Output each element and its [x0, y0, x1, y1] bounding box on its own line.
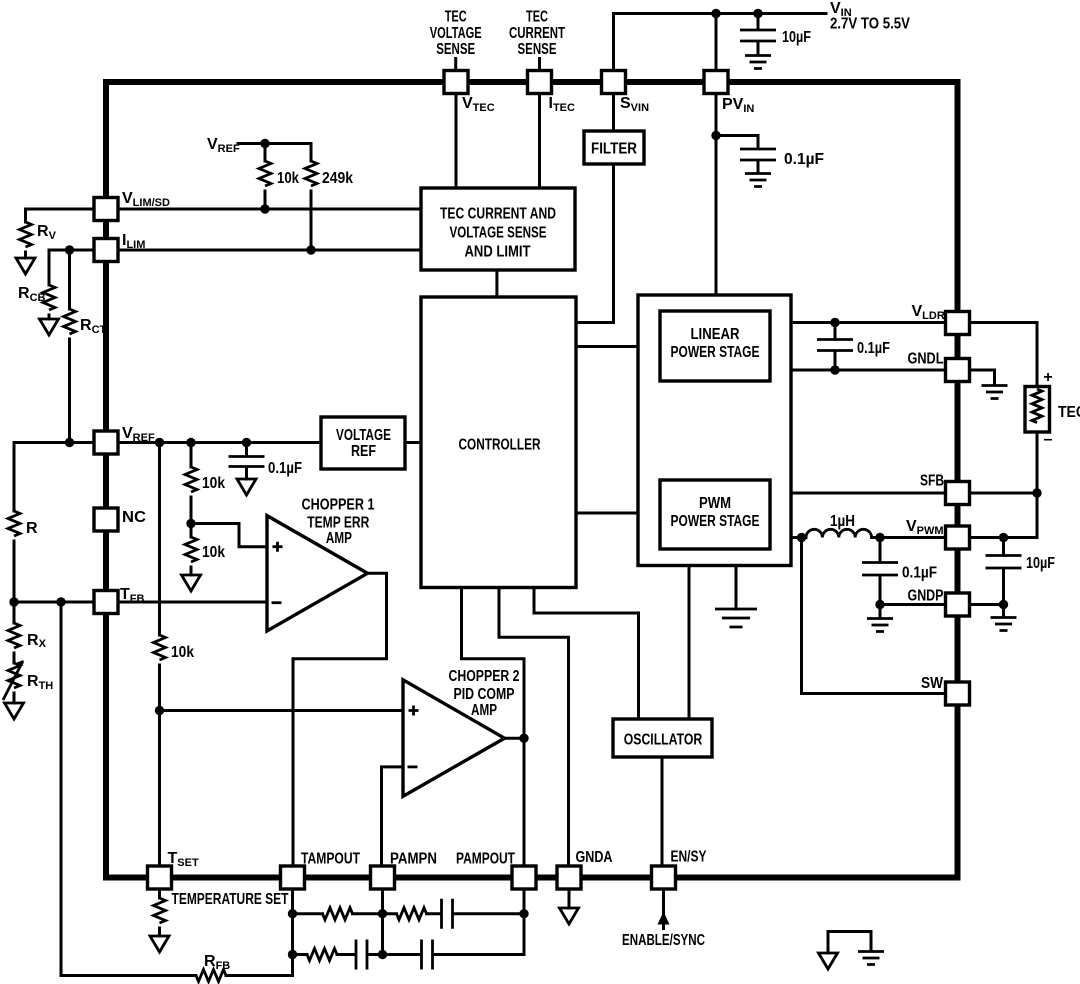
svg-text:GNDP: GNDP — [908, 588, 944, 605]
svg-text:ENABLE/SYNC: ENABLE/SYNC — [622, 932, 705, 949]
svg-text:GNDL: GNDL — [908, 351, 944, 368]
svg-text:SENSE: SENSE — [436, 41, 475, 58]
svg-text:TEC: TEC — [1058, 404, 1080, 421]
svg-text:VOLTAGE: VOLTAGE — [430, 25, 482, 42]
svg-text:SFB: SFB — [920, 473, 944, 490]
svg-text:0.1µF: 0.1µF — [857, 340, 890, 357]
svg-text:10µF: 10µF — [782, 29, 811, 46]
svg-text:PAMPN: PAMPN — [390, 851, 437, 868]
svg-text:POWER STAGE: POWER STAGE — [671, 513, 760, 530]
svg-text:GNDA: GNDA — [576, 849, 613, 866]
svg-text:LINEAR: LINEAR — [691, 326, 740, 343]
svg-text:10k: 10k — [171, 644, 194, 661]
svg-text:TEMPERATURE SET: TEMPERATURE SET — [172, 891, 289, 908]
svg-text:0.1µF: 0.1µF — [268, 460, 302, 477]
svg-text:CURRENT: CURRENT — [509, 25, 565, 42]
svg-text:TEC: TEC — [445, 9, 467, 26]
svg-text:OSCILLATOR: OSCILLATOR — [624, 732, 703, 749]
svg-text:TAMPOUT: TAMPOUT — [301, 851, 360, 868]
svg-text:R: R — [26, 520, 38, 537]
svg-text:+: + — [1043, 369, 1052, 386]
svg-text:10k: 10k — [277, 170, 299, 187]
svg-text:AMP: AMP — [326, 530, 352, 547]
svg-text:SW: SW — [921, 675, 944, 692]
svg-text:0.1µF: 0.1µF — [784, 151, 824, 168]
svg-text:NC: NC — [122, 509, 146, 526]
svg-text:10k: 10k — [202, 544, 225, 561]
svg-text:CONTROLLER: CONTROLLER — [459, 437, 541, 454]
svg-text:AMP: AMP — [471, 702, 497, 719]
svg-text:10µF: 10µF — [1026, 555, 1055, 572]
svg-text:10k: 10k — [202, 475, 225, 492]
svg-text:FILTER: FILTER — [591, 141, 637, 158]
svg-text:CHOPPER 2: CHOPPER 2 — [449, 668, 520, 685]
svg-text:2.7V TO 5.5V: 2.7V TO 5.5V — [830, 16, 910, 33]
svg-text:CHOPPER 1: CHOPPER 1 — [302, 496, 375, 513]
svg-text:PAMPOUT: PAMPOUT — [456, 851, 515, 868]
svg-text:249k: 249k — [322, 170, 353, 187]
svg-text:SENSE: SENSE — [518, 41, 557, 58]
svg-text:0.1µF: 0.1µF — [902, 565, 937, 582]
svg-text:VOLTAGE: VOLTAGE — [336, 427, 391, 444]
svg-text:POWER STAGE: POWER STAGE — [671, 344, 760, 361]
svg-text:TEC CURRENT AND: TEC CURRENT AND — [440, 206, 556, 223]
svg-text:VOLTAGE SENSE: VOLTAGE SENSE — [450, 225, 547, 242]
svg-text:–: – — [1044, 431, 1053, 448]
svg-text:EN/SY: EN/SY — [671, 849, 707, 866]
svg-text:PID COMP: PID COMP — [454, 686, 515, 703]
svg-text:TEC: TEC — [526, 9, 548, 26]
svg-text:PWM: PWM — [699, 495, 731, 512]
svg-text:AND LIMIT: AND LIMIT — [465, 244, 531, 261]
svg-text:1µH: 1µH — [830, 513, 855, 530]
svg-text:REF: REF — [351, 443, 376, 460]
